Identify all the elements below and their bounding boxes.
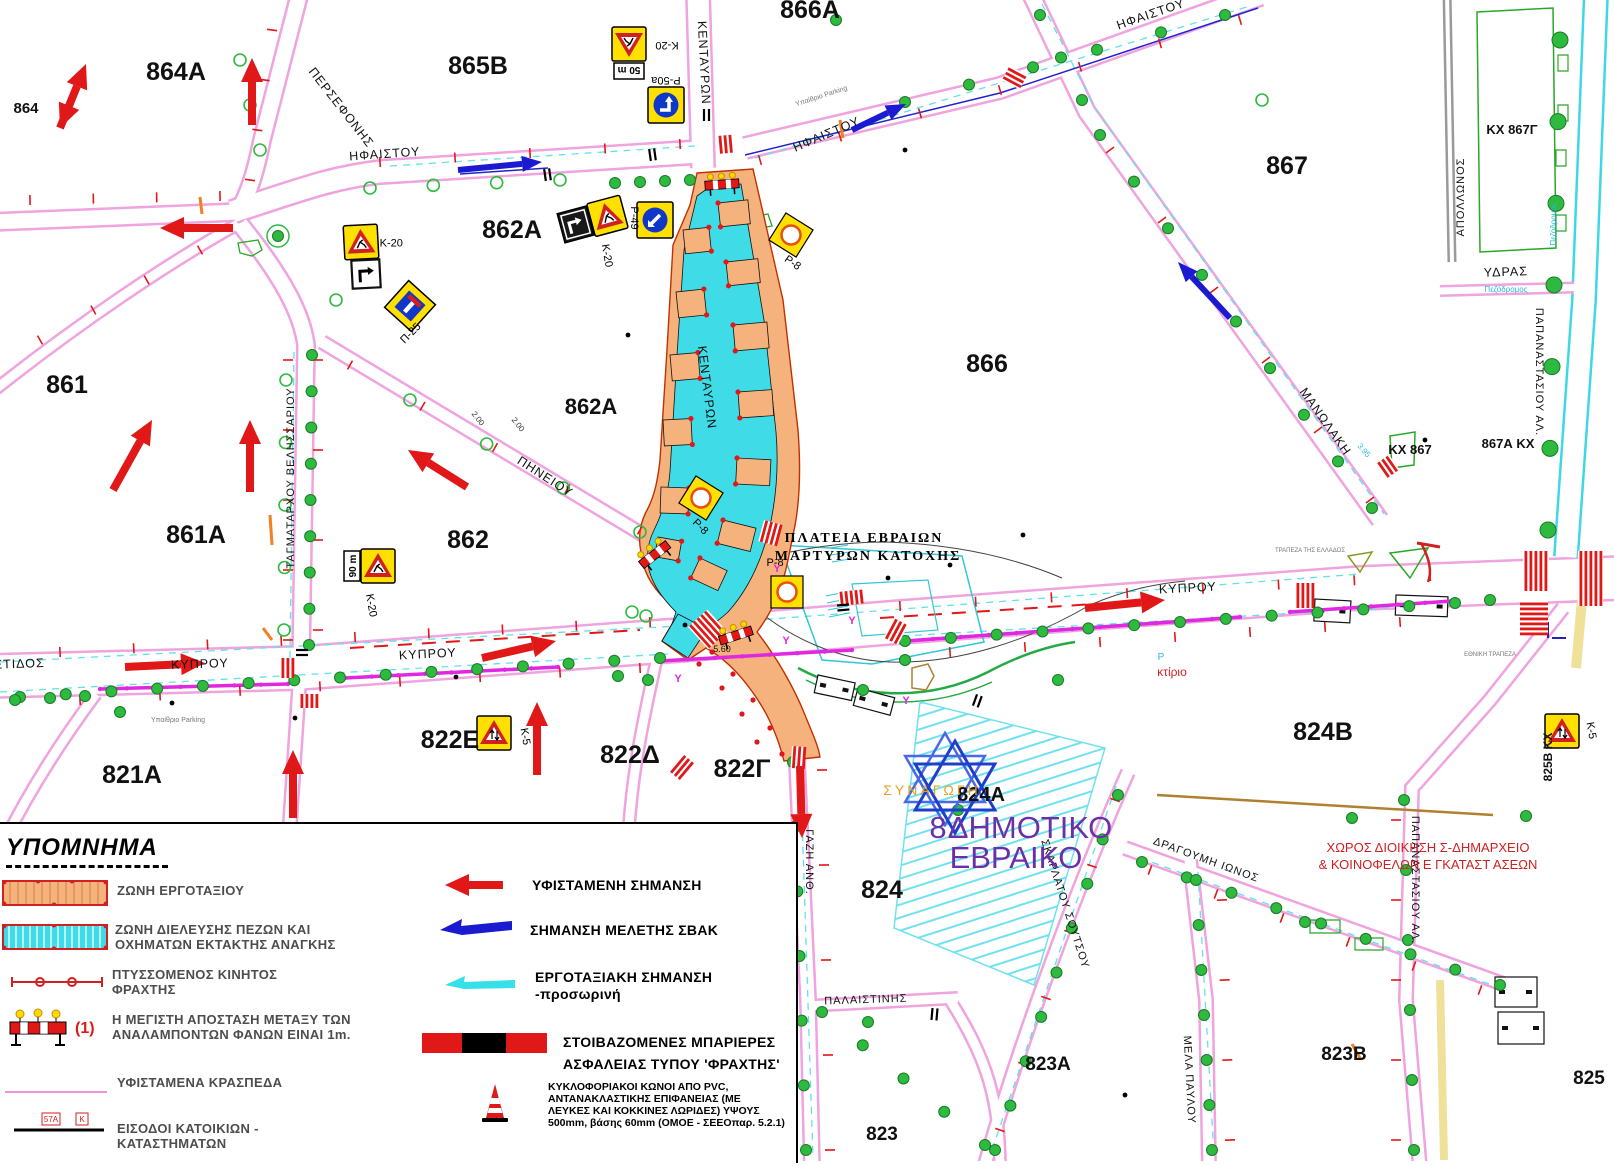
street-label: ΠΕΡΣΕΦΟΝΗΣ	[306, 65, 377, 150]
legend-curb-icon	[5, 1082, 107, 1100]
block-label: 823Α	[1025, 1054, 1071, 1075]
tree-ring-icon	[234, 54, 246, 66]
sign-label: K-5	[1584, 721, 1599, 740]
block-label: 821Α	[102, 761, 162, 789]
tree-icon	[1300, 917, 1311, 928]
tree-icon	[305, 458, 316, 469]
red-tick	[1214, 889, 1217, 898]
legend-lamps-label: Η ΜΕΓΙΣΤΗ ΑΠΟΣΤΑΣΗ ΜΕΤΑΞΥ ΤΩΝΑΝΑΛΑΜΠΟΝΤΩ…	[112, 1013, 351, 1043]
tree-icon	[1196, 965, 1207, 976]
crosswalk	[1376, 455, 1399, 479]
flasher-lamps	[16, 1009, 60, 1022]
legend-curbs-label: ΥΦΙΣΤΑΜΕΝΑ ΚΡΑΣΠΕΔΑ	[117, 1076, 282, 1091]
block-label: 867	[1266, 152, 1308, 180]
tree-icon	[1312, 607, 1323, 618]
map-text-label: 2.00	[510, 416, 527, 434]
work-zone-block	[730, 319, 769, 353]
red-tick	[680, 139, 681, 149]
tree-icon	[1550, 114, 1566, 130]
red-tick	[1250, 627, 1251, 637]
tree-icon	[1220, 10, 1231, 21]
map-text-label: Y	[773, 563, 781, 575]
block-label: 864	[13, 100, 39, 117]
tree-icon	[1495, 980, 1506, 991]
work-zone-block	[735, 387, 774, 421]
tree-icon	[80, 691, 91, 702]
tree-icon	[1156, 27, 1167, 38]
tree-icon	[115, 707, 126, 718]
tree-icon	[1056, 52, 1067, 63]
red-tick	[975, 597, 976, 607]
red-tick	[428, 628, 429, 638]
tree-icon	[863, 1017, 874, 1028]
legend-ref-1: (1)	[75, 1020, 95, 1038]
map-text-label: ΧΩΡΟΣ ΔΙΟΙΚΗΣΗ Σ-ΔΗΜΑΡΧΕΙΟ	[1327, 840, 1530, 855]
legend-blue-arrow-label: ΣΗΜΑΝΣΗ ΜΕΛΕΤΗΣ ΣΒΑΚ	[530, 922, 718, 939]
legend-entrance-icon: 57Α Κ	[14, 1112, 104, 1139]
tree-icon	[660, 176, 671, 187]
tree-icon	[900, 655, 911, 666]
tree-icon	[1226, 887, 1237, 898]
crosswalk	[299, 694, 319, 708]
tree-icon	[1053, 675, 1064, 686]
crosswalk	[280, 658, 294, 678]
crosswalk	[790, 746, 806, 769]
red-tick	[1400, 617, 1401, 627]
red-tick	[1280, 913, 1283, 922]
tree-icon	[990, 1145, 1001, 1156]
legend-zone-orange-swatch	[2, 880, 108, 911]
map-text-label: Y	[782, 635, 790, 647]
legend-fence-label: ΠΤΥΣΣΟΜΕΝΟΣ ΚΙΝΗΤΟΣΦΡΑΧΤΗΣ	[112, 968, 277, 998]
legend-red-arrow-icon	[445, 872, 507, 903]
tree-icon	[609, 655, 620, 666]
tree-ring-icon	[554, 174, 566, 186]
tree-ring-icon	[280, 374, 292, 386]
sign-p49: P-49	[628, 202, 673, 238]
legend-fence-icon	[10, 974, 105, 995]
crosswalk	[717, 135, 735, 154]
street-label: ΤΑΓΜΑΤΑΡΧΟΥ ΒΕΛΗΣΣΑΡΙΟΥ	[285, 387, 297, 568]
street-label: ΠΑΠΑΝΑΣΤΑΣΙΟΥ ΑΛ.	[1409, 816, 1421, 944]
red-arrow	[800, 766, 801, 814]
legend-zone-cyan-swatch	[2, 924, 108, 955]
tree-icon	[1542, 440, 1558, 456]
tree-icon	[1450, 964, 1461, 975]
tree-icon	[1201, 1055, 1212, 1066]
zone-edge-dot	[767, 725, 772, 730]
sign-label: K-20	[363, 593, 379, 618]
map-text-label: Πεζόδρομος	[1549, 202, 1558, 245]
tree-icon	[685, 175, 696, 186]
street-furniture-rect	[1498, 1012, 1544, 1044]
tree-icon	[1485, 595, 1496, 606]
legend-cyan-arrow-label: ΕΡΓΟΤΑΞΙΑΚΗ ΣΗΜΑΝΣΗ-προσωρινή	[535, 969, 712, 1003]
tree-icon	[1399, 795, 1410, 806]
crosswalk	[1578, 551, 1603, 606]
red-tick	[1025, 642, 1026, 652]
red-tick	[60, 647, 61, 657]
tree-icon	[1299, 409, 1310, 420]
block-label: 862A	[482, 216, 542, 244]
tree-icon	[1544, 359, 1560, 375]
crosswalk	[1520, 601, 1548, 635]
tree-icon	[1037, 626, 1048, 637]
tree-icon	[1051, 967, 1062, 978]
tree-icon	[858, 685, 869, 696]
tree-icon	[1540, 522, 1556, 538]
red-tick	[560, 668, 561, 678]
tree-icon	[1231, 316, 1242, 327]
tree-icon	[1405, 949, 1416, 960]
tree-icon	[1271, 903, 1282, 914]
map-text-label: ΜΑΡΤΥΡΩΝ ΚΑΤΟΧΗΣ	[775, 549, 961, 564]
block-label: 862	[447, 526, 489, 554]
tree-icon	[1358, 604, 1369, 615]
sign-label: K-20	[380, 237, 403, 249]
tree-icon	[980, 1140, 991, 1151]
tree-icon	[817, 1007, 828, 1018]
block-label: 825Β ΚΧ	[1541, 733, 1555, 782]
red-tick	[1100, 637, 1101, 647]
tree-icon	[1197, 269, 1208, 280]
entrance-mark	[973, 694, 982, 707]
tree-icon	[305, 531, 316, 542]
red-arrow	[428, 463, 467, 487]
street-label: ΠΑΠΑΝΑΣΤΑΣΙΟΥ ΑΛ.	[1533, 308, 1545, 436]
tree-icon	[1367, 503, 1378, 514]
block-label: 866A	[780, 0, 840, 24]
red-tick	[1239, 15, 1242, 25]
tree-icon	[273, 231, 284, 242]
sign-label: Π-25	[398, 321, 423, 346]
crosswalk	[669, 754, 694, 780]
tree-icon	[1265, 363, 1276, 374]
red-tick	[207, 640, 208, 650]
street-label: ΜΕΛΑ ΠΑΥΛΟΥ	[1181, 1035, 1198, 1124]
red-tick	[530, 148, 531, 158]
red-tick	[240, 686, 241, 696]
tree-icon	[1220, 613, 1231, 624]
tree-icon	[898, 1073, 909, 1084]
tree-icon	[517, 661, 528, 672]
tree-icon	[613, 671, 624, 682]
road-surface	[6, 694, 96, 838]
zone-edge-dot	[779, 751, 784, 756]
tree-icon	[243, 678, 254, 689]
road-surface	[0, 578, 1614, 676]
svg-text:57Α: 57Α	[44, 1115, 59, 1124]
decor-path	[1417, 543, 1440, 547]
zone-edge-dot	[730, 671, 735, 676]
tree-icon	[305, 495, 316, 506]
tree-icon	[798, 1080, 809, 1091]
work-zone-block	[683, 224, 714, 256]
zone-edge-dot	[739, 711, 744, 716]
decor-path	[1576, 600, 1582, 668]
sign-pi25: Π-25	[375, 281, 441, 347]
tree-icon	[197, 680, 208, 691]
tree-icon	[857, 1040, 868, 1051]
tree-ring-icon	[278, 624, 290, 636]
tree-icon	[635, 177, 646, 188]
tree-icon	[1137, 857, 1148, 868]
survey-dot	[454, 675, 459, 680]
tree-icon	[380, 669, 391, 680]
tree-icon	[1028, 62, 1039, 73]
block-label: ΚΧ 867Γ	[1486, 122, 1537, 137]
legend-title: ΥΠΟΜΝΗΜΑ	[6, 834, 168, 868]
tree-icon	[1129, 176, 1140, 187]
red-arrow	[113, 441, 140, 490]
legend-flasher-barrier-icon	[8, 1007, 70, 1054]
red-tick	[900, 601, 901, 611]
red-arrow	[1085, 602, 1141, 608]
sign-turnwhite	[351, 259, 380, 288]
work-zone-block	[733, 455, 771, 488]
map-text-label: ΕΘΝΙΚΗ ΤΡΑΠΕΖΑ	[1464, 652, 1516, 658]
sign-label: P-49	[628, 206, 640, 229]
red-tick	[1354, 575, 1355, 585]
crosswalk	[838, 589, 864, 605]
legend-stack-barrier-icon	[422, 1032, 548, 1059]
decor-path	[1440, 980, 1444, 1160]
block-label: 824	[861, 876, 903, 904]
tree-icon	[1407, 1075, 1418, 1086]
tree-icon	[1552, 32, 1568, 48]
red-tick	[605, 144, 606, 154]
road-surface	[1406, 608, 1563, 1161]
survey-dot	[626, 333, 631, 338]
tree-icon	[1521, 811, 1532, 822]
survey-dot	[1021, 533, 1026, 538]
map-text-label: Ρ	[1158, 652, 1165, 663]
red-tick	[400, 677, 401, 687]
tree-icon	[335, 672, 346, 683]
sign-k20: K-20	[343, 223, 404, 260]
tree-icon	[1095, 130, 1106, 141]
block-label: 823	[866, 1124, 898, 1145]
sign-k20: 50 mK-20	[612, 27, 679, 79]
survey-dot	[293, 716, 298, 721]
map-text-label: Y	[848, 615, 856, 627]
tree-ring-icon	[491, 177, 503, 189]
map-text-label: Y	[902, 695, 910, 707]
tree-icon	[991, 629, 1002, 640]
tree-icon	[1405, 1005, 1416, 1016]
tree-icon	[563, 658, 574, 669]
street-label: ΘΕΤΙΔΟΣ	[0, 656, 45, 672]
street-label: ΠΗΝΕΙΟΥ	[515, 453, 576, 499]
tree-icon	[1360, 933, 1371, 944]
map-text-label: Πεζόδρομος	[1484, 285, 1527, 294]
zone-edge-dot	[754, 739, 759, 744]
tree-icon	[1005, 1100, 1016, 1111]
map-text-label: 5.60	[713, 644, 731, 654]
tree-icon	[1207, 1145, 1218, 1156]
tree-icon	[1316, 918, 1327, 929]
tree-icon	[1347, 813, 1358, 824]
survey-dot	[886, 576, 891, 581]
sign-label: K-5	[518, 727, 533, 746]
block-label: 865B	[448, 52, 508, 80]
block-label: ΚΧ 867	[1388, 442, 1431, 457]
survey-dot	[1123, 1093, 1128, 1098]
red-tick	[1127, 588, 1128, 598]
svg-text:90 m: 90 m	[348, 554, 359, 577]
street-label: ΓΑΖΗ ΑΝΘ.	[803, 829, 815, 894]
legend-zone-orange-label: ΖΩΝΗ ΕΡΓΟΤΑΞΙΟΥ	[117, 884, 244, 899]
red-tick	[650, 617, 651, 627]
svg-text:Κ: Κ	[79, 1115, 85, 1124]
tree-icon	[304, 640, 315, 651]
red-tick	[1325, 622, 1326, 632]
tree-icon	[472, 664, 483, 675]
legend-cyan-arrow-icon	[445, 974, 520, 1001]
red-tick	[281, 636, 282, 646]
crosswalk	[1523, 551, 1549, 591]
road-surface	[322, 342, 660, 545]
tree-icon	[1035, 10, 1046, 21]
map-text-label: ΣΥΝΑΓΩΓΗ	[883, 782, 980, 798]
svg-text:50 m: 50 m	[617, 64, 640, 75]
tree-icon	[60, 689, 71, 700]
road-casing	[1406, 608, 1563, 1161]
red-tick	[950, 647, 951, 657]
block-label: 822Ε	[421, 726, 479, 754]
legend-cone-label: ΚΥΚΛΟΦΟΡΙΑΚΟΙ ΚΩΝΟΙ ΑΠΟ PVC,ΑΝΤΑΝΑΚΛΑΣΤΙ…	[548, 1082, 785, 1129]
road-surface	[232, 152, 700, 212]
sign-label: P-50a	[650, 74, 680, 86]
red-tick	[1051, 592, 1052, 602]
sign-k20arrow: K-20	[557, 195, 637, 277]
tree-ring-icon	[626, 606, 638, 618]
legend-zone-cyan-label: ΖΩΝΗ ΔΙΕΛΕΥΣΗΣ ΠΕΖΩΝ ΚΑΙΟΧΗΜΑΤΩΝ ΕΚΤΑΚΤΗ…	[115, 923, 336, 953]
block-label: 867Α ΚΧ	[1482, 436, 1535, 451]
sign-label: K-20	[655, 39, 678, 51]
red-tick	[38, 336, 43, 345]
zone-edge-dot	[750, 697, 755, 702]
crosswalk	[1295, 583, 1314, 608]
street-label: ΥΔΡΑΣ	[1484, 264, 1529, 280]
tree-icon	[1404, 601, 1415, 612]
tree-icon	[1092, 44, 1103, 55]
tree-icon	[1546, 277, 1562, 293]
sign-k20v: 90 mK-20	[344, 549, 395, 618]
tree-icon	[106, 686, 117, 697]
tree-icon	[964, 79, 975, 90]
red-tick	[1175, 632, 1176, 642]
block-label: 822Γ	[714, 755, 771, 783]
tree-icon	[610, 178, 621, 189]
tree-icon	[1077, 95, 1088, 106]
tree-ring-icon	[330, 294, 342, 306]
survey-dot	[903, 148, 908, 153]
tree-icon	[1266, 610, 1277, 621]
red-tick	[355, 632, 356, 642]
decor-path	[912, 664, 934, 690]
red-tick	[1478, 985, 1481, 994]
red-tick	[640, 663, 641, 673]
red-tick	[576, 621, 577, 631]
tree-icon	[1193, 920, 1204, 931]
red-tick	[1278, 580, 1279, 590]
legend-blue-arrow-icon	[440, 916, 515, 945]
block-label: 823Β	[1321, 1044, 1366, 1065]
block-label: 822Δ	[600, 741, 660, 769]
red-tick	[133, 643, 134, 653]
legend-panel: ΥΠΟΜΝΗΜΑ (	[0, 822, 798, 1163]
tree-icon	[945, 632, 956, 643]
tree-icon	[304, 603, 315, 614]
block-label: 861	[46, 371, 88, 399]
tree-icon	[306, 386, 317, 397]
tree-icon	[939, 1106, 950, 1117]
tree-icon	[10, 695, 21, 706]
map-text-label: ΕΒΡΑΙΚΟ	[950, 840, 1083, 875]
sign-p50a: P-50a	[648, 74, 684, 123]
tree-icon	[1082, 878, 1093, 889]
block-label: 864A	[146, 58, 206, 86]
survey-dot	[170, 701, 175, 706]
red-tick	[320, 681, 321, 691]
block-label: 861A	[166, 521, 226, 549]
tree-icon	[304, 567, 315, 578]
work-zone-block	[663, 416, 695, 449]
map-text-label: ΠΛΑΤΕΙΑ ΕΒΡΑΙΩΝ	[785, 531, 944, 546]
map-text-label: ΤΡΑΠΕΖΑ ΤΗΣ ΕΛΛΑΔΟΣ	[1275, 548, 1345, 554]
map-text-label: 8	[929, 810, 946, 845]
tree-icon	[1191, 875, 1202, 886]
tree-icon	[1036, 1011, 1047, 1022]
sign-label: K-20	[599, 243, 615, 268]
tree-icon	[307, 350, 318, 361]
red-tick	[1346, 937, 1349, 946]
street-label: ΑΠΟΛΛΩΝΟΣ	[1455, 158, 1467, 237]
block-label: 862A	[565, 394, 618, 419]
tree-icon	[426, 666, 437, 677]
block-label: 824Β	[1293, 718, 1353, 746]
red-tick	[455, 153, 456, 163]
red-tick	[1148, 865, 1151, 874]
tree-icon	[643, 675, 654, 686]
street-label: ΚΥΠΡΟΥ	[171, 656, 229, 672]
map-text-label: Υπαίθριο Parking	[151, 716, 205, 724]
tree-ring-icon	[1256, 94, 1268, 106]
zone-edge-dot	[719, 685, 724, 690]
tree-icon	[152, 683, 163, 694]
tree-icon	[1409, 1145, 1420, 1156]
tree-icon	[1163, 223, 1174, 234]
block-label: 825	[1573, 1068, 1605, 1089]
map-text-label: κτίριο	[1157, 665, 1187, 679]
sign-label: P-8	[782, 253, 803, 273]
tree-icon	[1113, 790, 1124, 801]
tree-icon	[801, 1145, 812, 1156]
tree-icon	[1450, 598, 1461, 609]
block-label: 866	[966, 350, 1008, 378]
tree-icon	[1199, 1010, 1210, 1021]
red-tick	[267, 29, 277, 30]
map-text-label: Y	[674, 673, 682, 685]
tree-icon	[1204, 1100, 1215, 1111]
legend-cone-icon	[480, 1082, 510, 1131]
tree-icon	[1083, 623, 1094, 634]
traffic-plan-map: 50 mK-20P-50aP-49K-20K-20Π-25P-8P-8P-890…	[0, 0, 1614, 1161]
street-furniture-rect	[814, 675, 855, 701]
work-zone-block	[676, 286, 710, 320]
tree-icon	[1175, 617, 1186, 628]
